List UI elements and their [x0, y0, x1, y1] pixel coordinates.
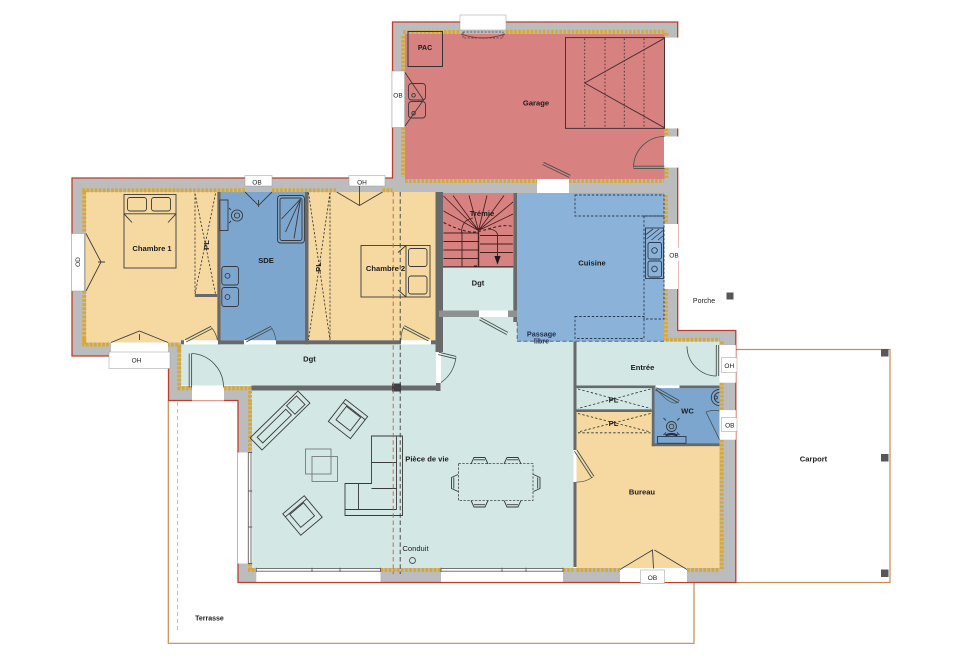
svg-text:Chambre 2: Chambre 2 — [366, 264, 405, 273]
svg-text:PL: PL — [202, 240, 211, 250]
svg-text:OB: OB — [648, 575, 657, 582]
svg-text:OB: OB — [252, 179, 261, 186]
svg-text:OH: OH — [357, 179, 367, 186]
svg-text:OB: OB — [393, 92, 402, 99]
svg-text:Pièce de vie: Pièce de vie — [405, 455, 448, 464]
svg-text:Garage: Garage — [523, 98, 549, 107]
svg-text:Carport: Carport — [800, 455, 828, 464]
svg-text:SDE: SDE — [258, 256, 274, 265]
svg-text:Entrée: Entrée — [631, 363, 655, 372]
svg-text:PL: PL — [314, 262, 323, 272]
svg-text:Porche: Porche — [693, 298, 715, 305]
svg-text:OH: OH — [132, 358, 142, 365]
svg-text:Dgt: Dgt — [303, 355, 316, 364]
svg-text:libre: libre — [534, 337, 549, 346]
svg-text:OB: OB — [725, 422, 734, 429]
svg-text:Bureau: Bureau — [629, 488, 656, 497]
svg-text:Conduit: Conduit — [402, 544, 429, 553]
svg-text:PAC: PAC — [418, 45, 432, 52]
svg-text:OH: OH — [724, 363, 734, 370]
svg-text:Trémie: Trémie — [470, 209, 494, 218]
svg-text:PL: PL — [609, 419, 619, 428]
svg-text:OB: OB — [669, 252, 678, 259]
svg-text:Chambre 1: Chambre 1 — [132, 244, 172, 253]
svg-text:Cuisine: Cuisine — [578, 259, 605, 268]
svg-text:WC: WC — [681, 407, 694, 416]
svg-text:Terrasse: Terrasse — [195, 616, 224, 623]
svg-text:OD: OD — [75, 257, 82, 267]
svg-text:PL: PL — [609, 396, 619, 405]
svg-text:Dgt: Dgt — [472, 279, 485, 288]
